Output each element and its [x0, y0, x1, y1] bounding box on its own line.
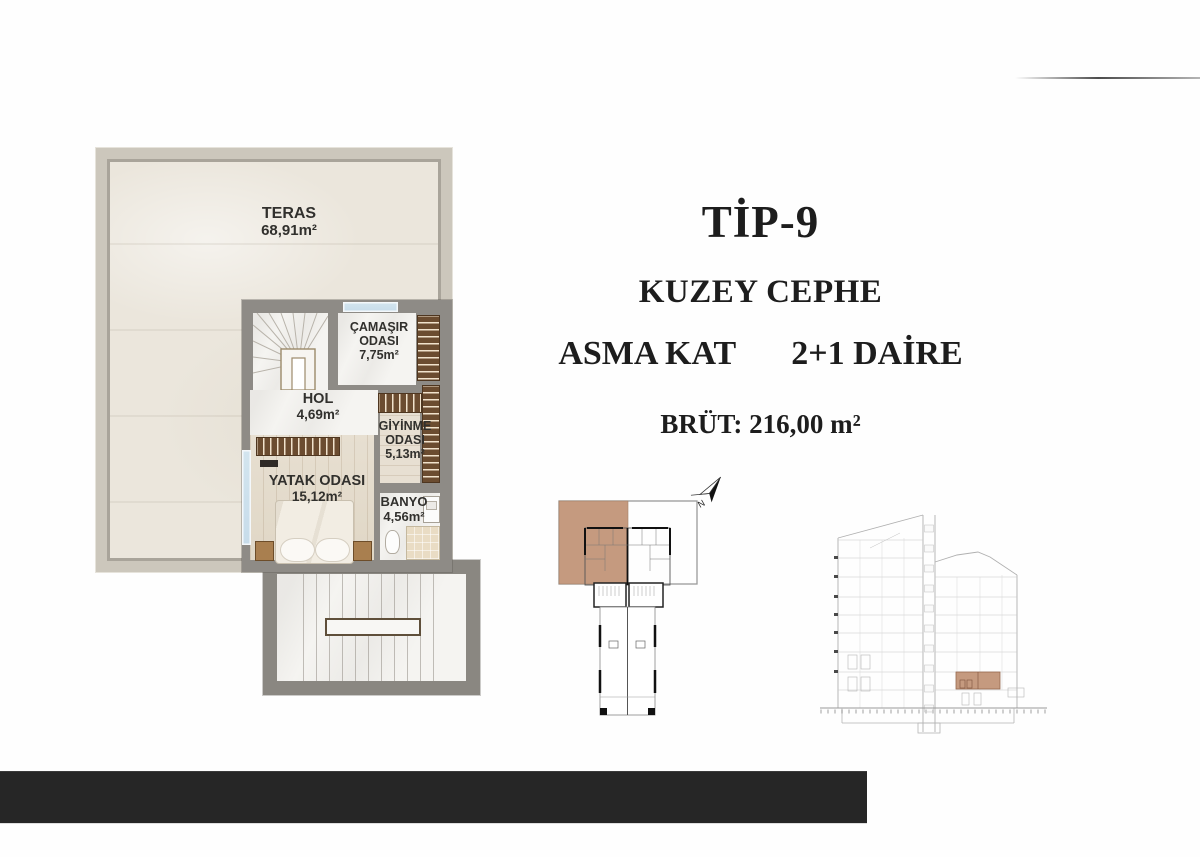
top-right-divider-line [1015, 77, 1200, 79]
yatak-area: 15,12m² [267, 489, 367, 504]
key-plan-stair-cores [594, 583, 663, 607]
lower-staircase-hall [263, 560, 480, 695]
bedroom-tv-unit [260, 460, 278, 467]
unit-label: 2+1 DAİRE [791, 335, 962, 373]
yatak-name: YATAK ODASI [267, 473, 367, 489]
teras-name: TERAS [237, 205, 341, 223]
banyo-area: 4,56m² [371, 510, 437, 525]
title-block: TİP-9 KUZEY CEPHE ASMA KAT 2+1 DAİRE BRÜ… [528, 188, 993, 448]
label-hol: HOL 4,69m² [277, 391, 359, 422]
bed-pillow-left [280, 538, 315, 562]
hol-area: 4,69m² [277, 407, 359, 422]
nightstand-left [255, 541, 274, 561]
giyinme-name: GİYİNME ODASI [369, 419, 441, 447]
nightstand-right [353, 541, 372, 561]
bathroom-shower [406, 526, 440, 560]
type-title: TİP-9 [528, 196, 993, 248]
camasir-area: 7,75m² [340, 348, 418, 362]
label-teras: TERAS 68,91m² [237, 205, 341, 240]
laundry-window [343, 302, 398, 312]
giyinme-area: 5,13m² [369, 447, 441, 461]
label-yatak: YATAK ODASI 15,12m² [267, 473, 367, 504]
laundry-wardrobe [417, 315, 440, 381]
section-ground [820, 708, 1047, 733]
bedroom-window [242, 450, 251, 545]
label-banyo: BANYO 4,56m² [371, 495, 437, 524]
teras-area: 68,91m² [237, 223, 341, 240]
upper-staircase-room [253, 313, 328, 390]
key-plan: N [545, 465, 745, 735]
bed-pillow-right [315, 538, 350, 562]
facade-title: KUZEY CEPHE [528, 274, 993, 311]
label-camasir: ÇAMAŞIR ODASI 7,75m² [340, 320, 418, 362]
key-plan-highlight [559, 501, 628, 584]
bathroom-toilet [385, 530, 400, 554]
label-giyinme: GİYİNME ODASI 5,13m² [369, 419, 441, 461]
section-level-ticks [834, 556, 838, 673]
floor-plan-sheet: TERAS 68,91m² ÇAMAŞIR ODASI 7,75m² HOL 4… [0, 0, 1200, 857]
upper-staircase-treads [253, 313, 328, 390]
bottom-bar [0, 771, 867, 823]
section-shaft-marks [925, 525, 934, 712]
floor-unit-title: ASMA KAT 2+1 DAİRE [528, 335, 993, 373]
staircase-railing [325, 618, 421, 636]
gross-area-label: BRÜT: 216,00 m² [528, 409, 993, 440]
camasir-name: ÇAMAŞIR ODASI [340, 320, 418, 348]
hol-name: HOL [277, 391, 359, 407]
building-section [812, 500, 1057, 745]
dressing-closet-top [378, 393, 422, 413]
floor-label: ASMA KAT [558, 335, 736, 373]
key-plan-lower-wing [600, 607, 655, 715]
bedroom-wardrobe [256, 437, 340, 456]
banyo-name: BANYO [371, 495, 437, 510]
